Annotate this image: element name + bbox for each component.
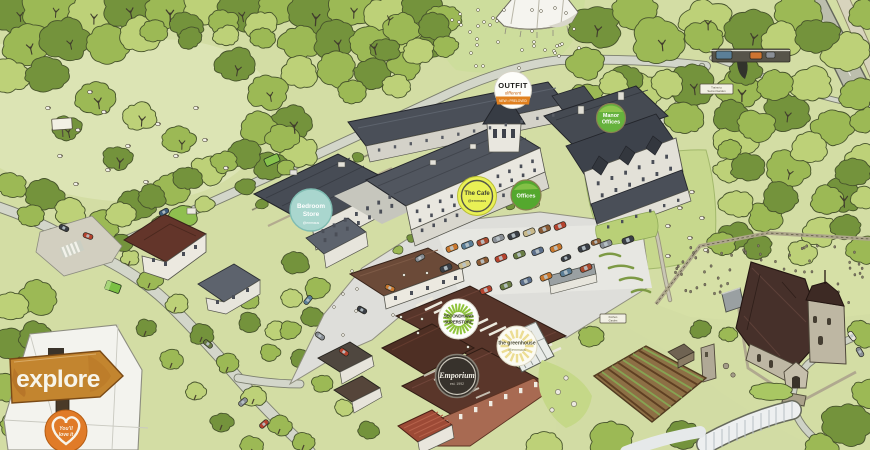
svg-text:explore: explore bbox=[16, 366, 100, 393]
svg-text:Garden: Garden bbox=[609, 318, 618, 322]
svg-text:NEW • PRELOVED: NEW • PRELOVED bbox=[499, 99, 527, 103]
svg-text:@emmaus: @emmaus bbox=[508, 348, 526, 352]
svg-text:SECONDHAND: SECONDHAND bbox=[444, 314, 473, 319]
svg-text:OUTFIT: OUTFIT bbox=[498, 81, 527, 90]
svg-text:Offices: Offices bbox=[602, 120, 620, 126]
svg-text:Secret Garden: Secret Garden bbox=[707, 89, 726, 93]
svg-text:@emmaus: @emmaus bbox=[468, 199, 487, 203]
svg-text:@emmaus: @emmaus bbox=[303, 221, 320, 225]
svg-text:love it: love it bbox=[59, 432, 74, 438]
svg-text:SUPERSTORE: SUPERSTORE bbox=[444, 320, 472, 325]
svg-text:Emporium: Emporium bbox=[438, 371, 475, 380]
svg-text:the greenhouse: the greenhouse bbox=[498, 341, 535, 347]
svg-text:different: different bbox=[505, 91, 522, 96]
svg-text:Bedroom: Bedroom bbox=[297, 203, 325, 210]
svg-text:Offices: Offices bbox=[517, 194, 536, 200]
svg-text:Manor: Manor bbox=[603, 113, 620, 119]
svg-text:Store: Store bbox=[303, 211, 320, 218]
svg-text:est. 1992: est. 1992 bbox=[450, 382, 464, 386]
svg-text:The Cafe: The Cafe bbox=[464, 191, 490, 197]
